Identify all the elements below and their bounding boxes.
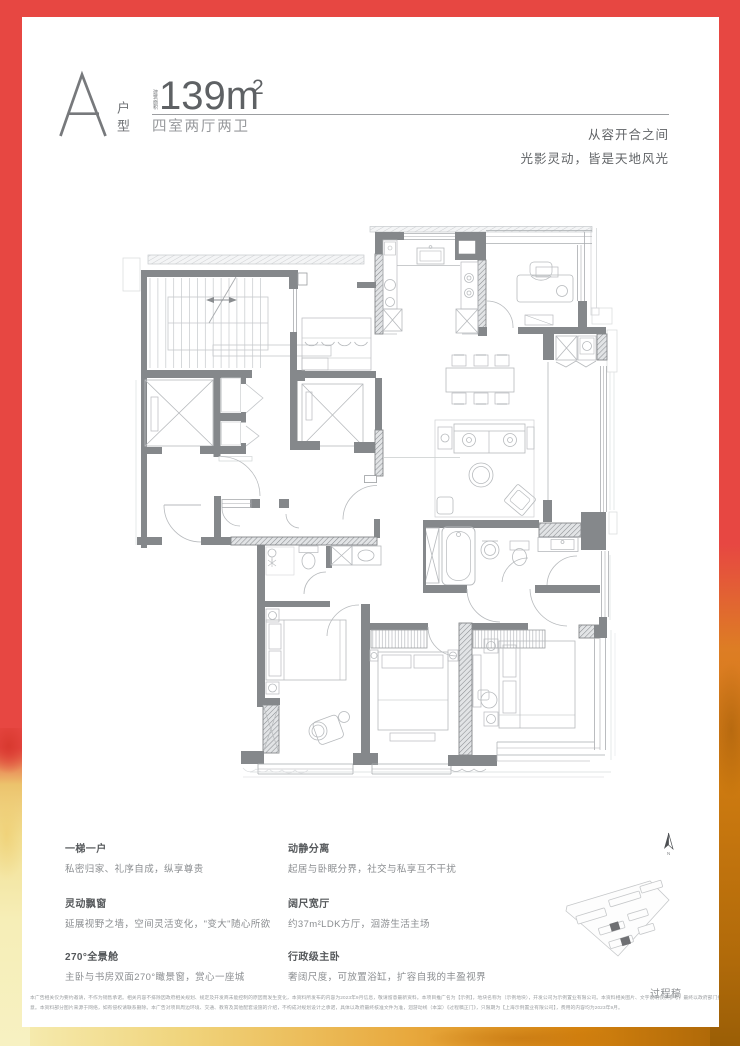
- svg-text:N: N: [667, 851, 670, 856]
